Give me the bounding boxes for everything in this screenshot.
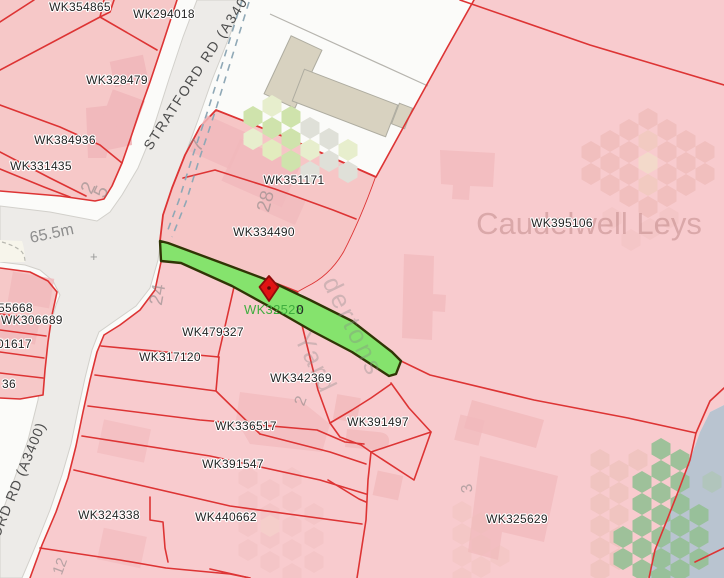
svg-text:WK331435: WK331435 <box>10 159 72 173</box>
svg-text:WK351171: WK351171 <box>264 173 325 187</box>
svg-text:WK324338: WK324338 <box>78 508 140 522</box>
svg-text:WK342369: WK342369 <box>270 371 332 385</box>
svg-text:WK325629: WK325629 <box>486 512 548 526</box>
svg-text:24: 24 <box>146 282 170 307</box>
svg-text:WK294018: WK294018 <box>133 7 195 21</box>
svg-text:WK317120: WK317120 <box>139 350 201 364</box>
svg-text:WK306689: WK306689 <box>1 313 63 327</box>
svg-text:WK384936: WK384936 <box>34 133 96 147</box>
svg-text:36: 36 <box>2 377 16 391</box>
svg-text:WK336517: WK336517 <box>215 419 277 433</box>
svg-text:WK354865: WK354865 <box>49 0 111 14</box>
svg-text:WK440662: WK440662 <box>195 510 257 524</box>
svg-text:WK395106: WK395106 <box>531 216 593 230</box>
svg-text:WK32528: WK32528 <box>244 302 303 317</box>
svg-text:WK479327: WK479327 <box>182 325 244 339</box>
svg-text:WK391497: WK391497 <box>347 415 409 429</box>
svg-text:0: 0 <box>297 302 304 317</box>
svg-text:WK328479: WK328479 <box>86 73 148 87</box>
svg-text:WK334490: WK334490 <box>233 225 295 239</box>
svg-text:WK391547: WK391547 <box>202 457 264 471</box>
svg-text:+: + <box>90 249 98 264</box>
svg-text:01617: 01617 <box>0 337 32 351</box>
